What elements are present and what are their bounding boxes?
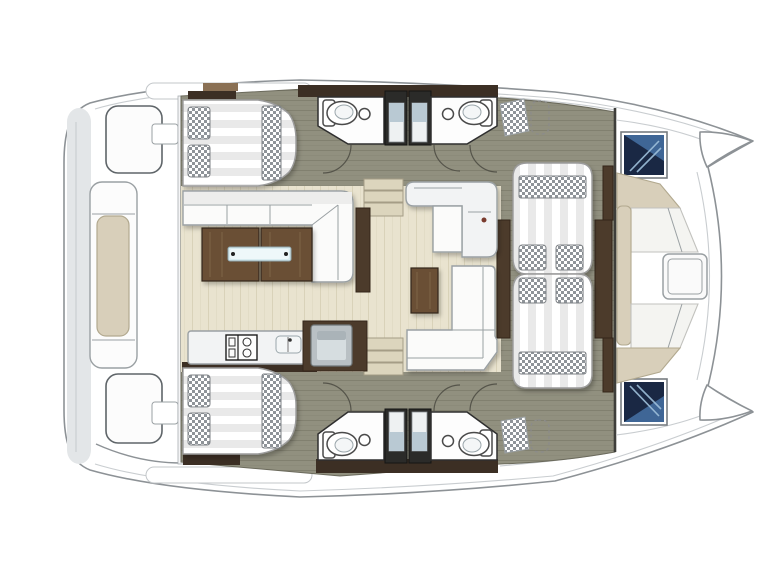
- galley-faucet: [482, 218, 487, 223]
- steps-port: [364, 191, 403, 202]
- stove-icon: [226, 335, 257, 360]
- galley-sink-icon: [276, 336, 301, 353]
- floor-plan-page: [0, 0, 768, 576]
- forward-wall-bottom: [603, 338, 613, 392]
- aft-step-port: [152, 124, 178, 144]
- forward-berths: [513, 163, 592, 388]
- washbasin-icon: [359, 109, 370, 120]
- starboard-berth-pillow: [188, 375, 210, 407]
- forward-wall-top: [603, 166, 613, 220]
- catamaran-floor-plan: [0, 0, 768, 576]
- shower-glass: [412, 103, 427, 122]
- shower-glass: [412, 432, 427, 451]
- appliance-shade: [317, 331, 346, 340]
- galley-peninsula: [433, 206, 462, 252]
- transom-step-band: [67, 108, 91, 464]
- washbasin-icon: [359, 435, 370, 446]
- berth-pillow: [556, 245, 583, 270]
- sofa-backrest: [184, 192, 352, 204]
- steps-starboard: [364, 351, 403, 362]
- steps-port: [364, 179, 403, 190]
- aft-bench-cushion: [97, 216, 129, 336]
- washbasin-icon: [443, 436, 454, 447]
- berth-runner: [519, 352, 586, 374]
- tv-cabinet: [411, 268, 438, 313]
- deck-sunpad-top: [500, 99, 529, 136]
- aft-step-starboard: [152, 402, 178, 424]
- washbasin-icon: [443, 109, 454, 120]
- toilet-icon: [323, 100, 357, 126]
- sink-faucet: [288, 338, 292, 342]
- port-berth-pillow: [188, 145, 210, 177]
- berth-runner: [519, 176, 586, 198]
- port-berth-runner: [262, 106, 281, 180]
- berth-pillow: [519, 245, 546, 270]
- bow-hatch-port: [621, 132, 667, 178]
- wardrobe-right: [595, 220, 612, 338]
- steps-starboard: [364, 338, 403, 350]
- wardrobe-left: [497, 220, 510, 338]
- deck-sunpad-bottom: [501, 417, 529, 453]
- shower-glass: [389, 103, 404, 122]
- bow-hatch-starboard: [621, 379, 667, 425]
- foredeck-table: [663, 254, 707, 299]
- steps-starboard: [364, 363, 403, 375]
- port-berth-pillow: [188, 107, 210, 139]
- table-latch: [231, 252, 235, 256]
- steps-divider-wall: [356, 208, 370, 292]
- berth-pillow: [519, 278, 546, 303]
- lounge-backrest: [617, 206, 631, 345]
- table-glass-core: [230, 249, 289, 259]
- cabin-wall-port: [188, 91, 236, 99]
- headboard-wall-port: [203, 83, 238, 91]
- toilet-icon: [459, 100, 492, 126]
- cabin-wall-starboard: [183, 454, 240, 465]
- starboard-berth-runner: [262, 374, 281, 448]
- shower-glass: [389, 432, 404, 451]
- berth-pillow: [556, 278, 583, 303]
- table-latch: [284, 252, 288, 256]
- starboard-berth-pillow: [188, 413, 210, 445]
